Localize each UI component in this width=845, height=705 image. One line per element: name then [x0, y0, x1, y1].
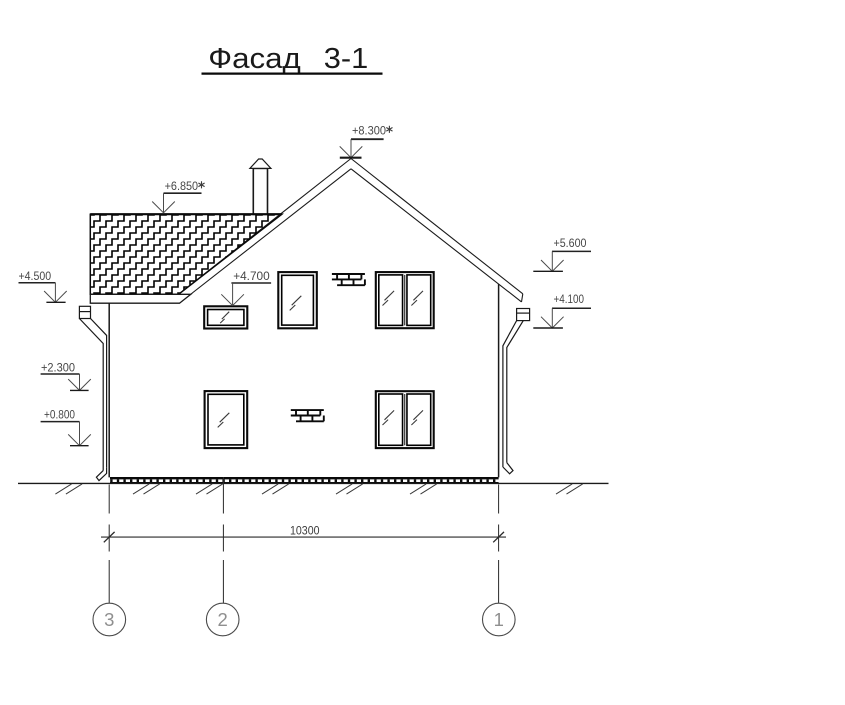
svg-text:10300: 10300: [290, 524, 320, 538]
svg-text:3: 3: [104, 609, 114, 630]
svg-text:+4.100: +4.100: [554, 292, 585, 306]
svg-text:+8.300: +8.300: [352, 123, 386, 137]
svg-text:+4.700: +4.700: [233, 269, 270, 283]
svg-text:Фасад: Фасад: [208, 43, 301, 75]
svg-text:+2.300: +2.300: [41, 361, 75, 375]
svg-text:+5.600: +5.600: [554, 236, 587, 250]
svg-text:+0.800: +0.800: [44, 408, 75, 422]
svg-text:3-1: 3-1: [324, 43, 369, 75]
svg-text:+4.500: +4.500: [19, 269, 52, 283]
svg-text:1: 1: [494, 609, 504, 630]
svg-text:+6.850: +6.850: [165, 179, 199, 193]
svg-text:2: 2: [218, 609, 228, 630]
